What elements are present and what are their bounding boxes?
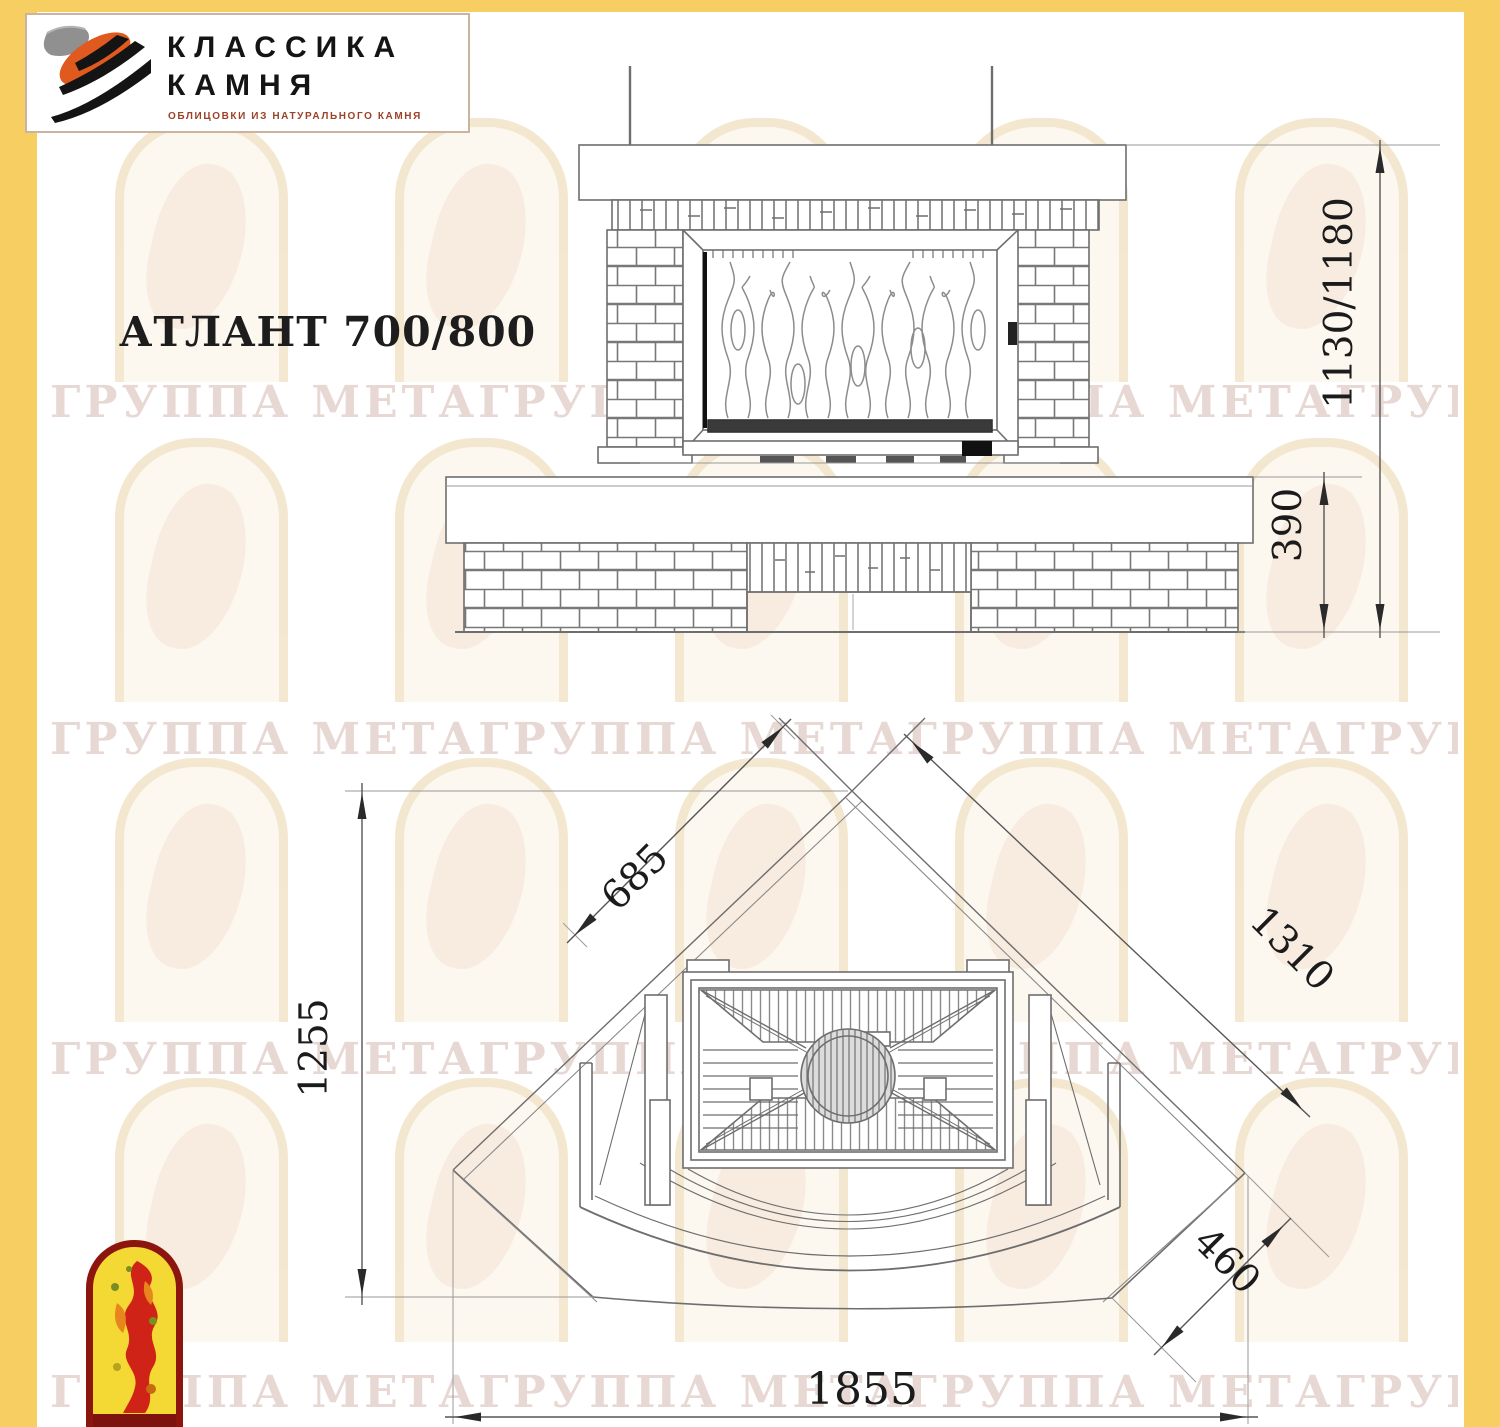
company-logo-box: КЛАССИКА КАМНЯ ОБЛИЦОВКИ ИЗ НАТУРАЛЬНОГО… (25, 13, 470, 133)
dim-side-wall-label: 685 (593, 835, 677, 919)
page-border-left (0, 0, 37, 1427)
company-tagline: ОБЛИЦОВКИ ИЗ НАТУРАЛЬНОГО КАМНЯ (168, 111, 422, 122)
hearth-arcs (640, 1163, 1056, 1229)
plan-front-edge (593, 1297, 1112, 1309)
firebird-icon (93, 1247, 176, 1427)
hearth-slab (446, 477, 1253, 543)
dim-plan-depth-label: 1255 (292, 998, 337, 1097)
chimney-lines (630, 66, 992, 145)
ash-drawer (962, 441, 992, 456)
dim-total-width-label: 1855 (806, 1364, 918, 1415)
page-border-top (0, 0, 1500, 12)
front-elevation-view (446, 66, 1253, 632)
company-name-line1: КЛАССИКА (167, 31, 404, 65)
page-border-right (1464, 0, 1500, 1427)
dim-front-height-label: 1130/1180 (1317, 197, 1362, 409)
technical-drawing: 1130/1180 390 1255 685 1310 460 1855 (0, 0, 1500, 1427)
firebox-plan (645, 960, 1051, 1205)
company-name-line2: КАМНЯ (167, 69, 320, 103)
emblem-base (93, 1414, 176, 1427)
right-brick-column (1013, 230, 1089, 447)
dim-line-side-wall (567, 719, 791, 943)
base-niche (747, 592, 971, 632)
base-left-bricks (464, 543, 747, 632)
plan-view (453, 718, 1245, 1309)
dim-base-height-label: 390 (1266, 488, 1311, 562)
flue-fan (801, 1029, 895, 1123)
dim-diagonal-label: 1310 (1241, 898, 1343, 1000)
mantel-shelf (579, 145, 1126, 200)
base-frieze (747, 543, 971, 592)
left-brick-column (607, 230, 683, 447)
page-title: АТЛАНТ 700/800 (119, 308, 536, 356)
firebox (683, 230, 1018, 463)
firebird-emblem (86, 1240, 183, 1427)
base-right-bricks (971, 543, 1238, 632)
stone-logo-icon (33, 21, 165, 125)
frieze-band (612, 200, 1099, 230)
drawing-sheet: ГРУППА МЕТАГРУППА МЕТАГРУППА МЕТАГРУППА … (0, 0, 1500, 1427)
dim-corner-label: 460 (1185, 1219, 1269, 1303)
hearth-curve-outer (580, 1207, 1120, 1271)
